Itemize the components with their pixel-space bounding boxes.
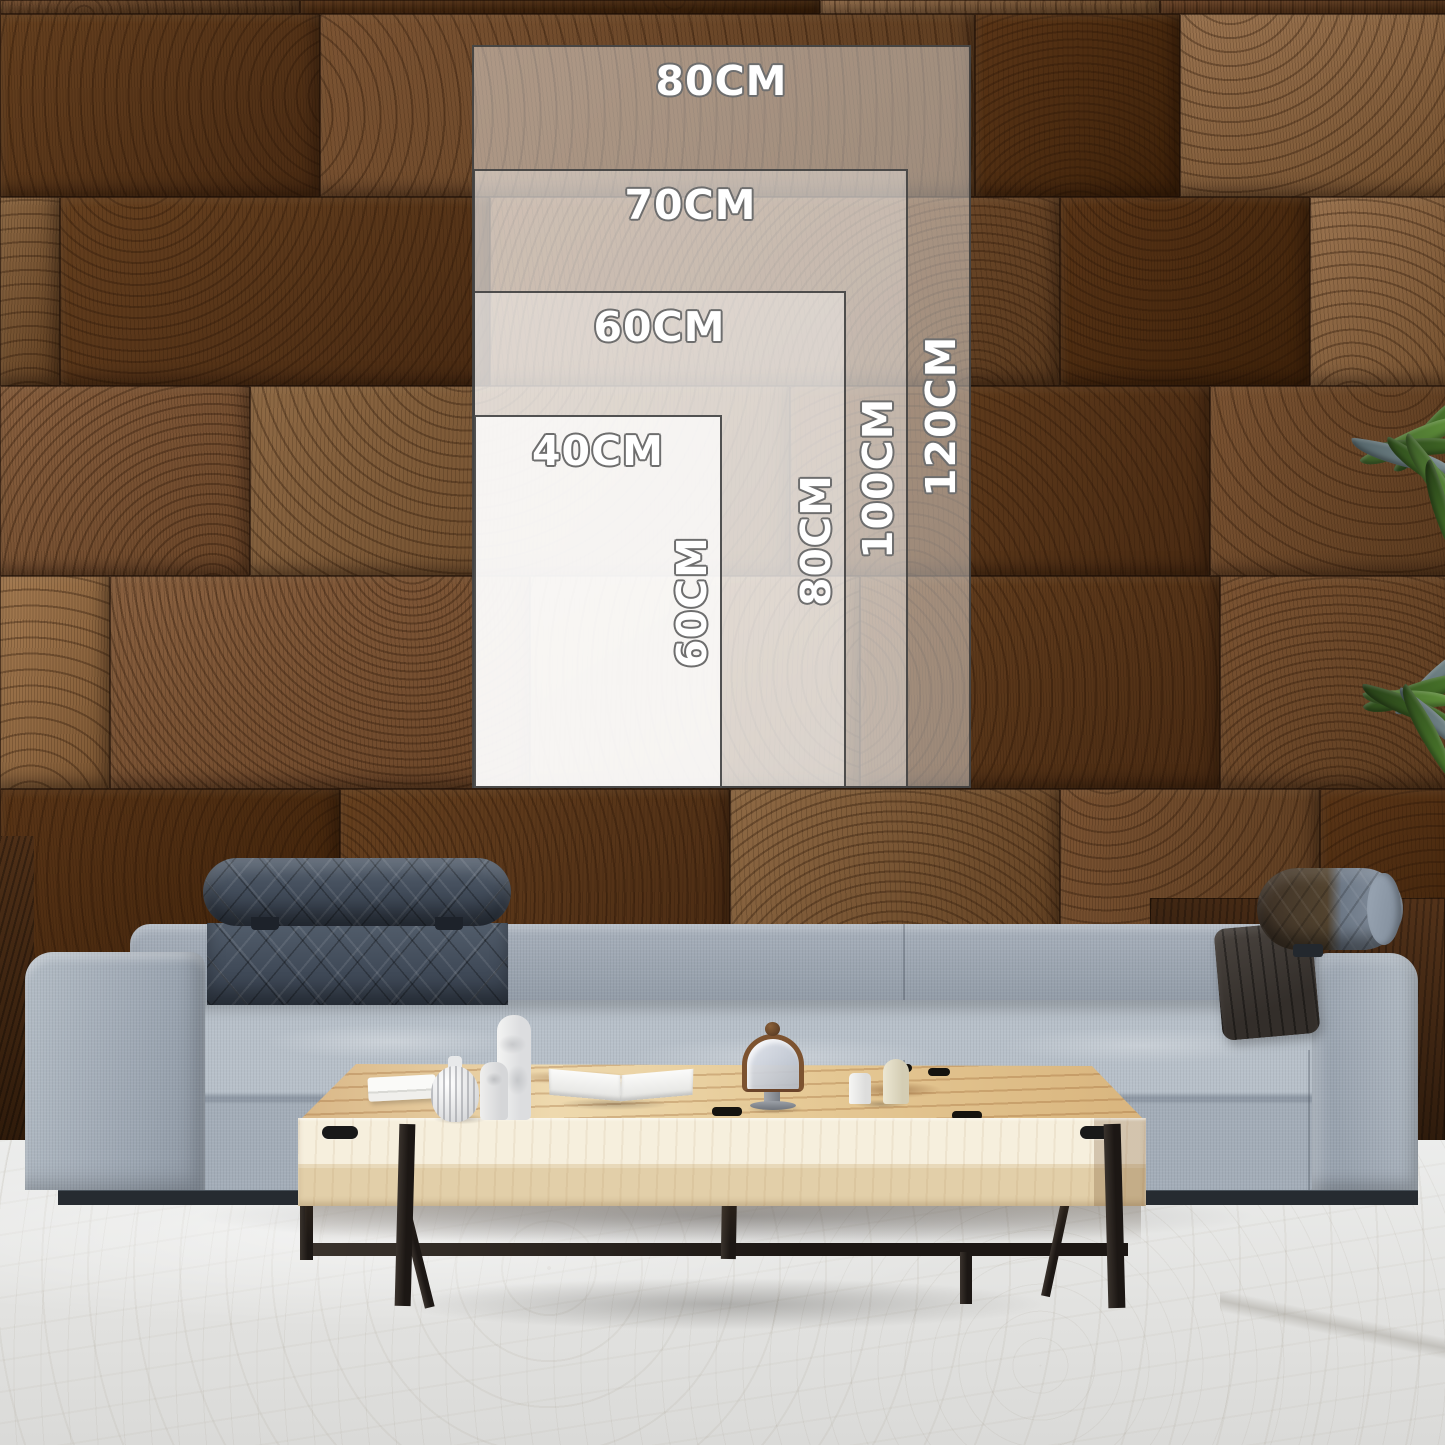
wall-block [1180, 14, 1445, 197]
wall-block [300, 0, 820, 14]
gourd-vase [431, 1066, 479, 1122]
sofa-arm-left [25, 952, 205, 1190]
cloche-base [750, 1101, 796, 1110]
size-width-label: 40CM [476, 427, 720, 475]
wall-row [0, 0, 1445, 14]
book-page-right [621, 1069, 694, 1101]
wall-block [110, 576, 530, 789]
wall-block [0, 14, 320, 197]
wall-block [0, 197, 60, 386]
headrest-clip [251, 917, 279, 930]
size-rect-40x60: 40CM 60CM [474, 415, 722, 788]
size-height-label: 120CM [917, 337, 965, 497]
size-height-label: 100CM [854, 399, 902, 559]
open-book [547, 1066, 697, 1106]
quilted-headrest-roll [203, 858, 511, 926]
wall-block [0, 576, 110, 789]
table-leg-foot-right [960, 1252, 972, 1304]
sofa-arm-right [1312, 953, 1418, 1190]
size-guide-scene: 80CM 120CM 70CM 100CM 60CM 80CM 40CM 60C… [0, 0, 1445, 1445]
wall-block [1160, 0, 1445, 14]
wall-block [1060, 197, 1310, 386]
cloche-knob [765, 1022, 780, 1036]
size-height-label: 60CM [668, 522, 716, 682]
book-page-left [549, 1069, 622, 1101]
white-books [367, 1074, 436, 1102]
roll-pillow-endcap [1367, 873, 1401, 945]
wall-block [820, 0, 1160, 14]
wall-block [0, 386, 250, 576]
size-height-label: 80CM [792, 460, 840, 620]
headrest-clip [435, 917, 463, 930]
table-leg-runner [304, 1243, 1128, 1256]
wall-block [975, 14, 1180, 197]
floor-vein [1220, 1280, 1445, 1370]
size-width-label: 80CM [474, 57, 969, 105]
wall-block [0, 0, 300, 14]
tall-candle [883, 1059, 909, 1104]
table-handle-left [322, 1126, 358, 1139]
leather-roll-pillow [1257, 868, 1403, 950]
tabletop-slot [928, 1068, 950, 1076]
size-width-label: 60CM [475, 303, 844, 351]
table-front-face [298, 1118, 1146, 1206]
wall-block [60, 197, 490, 386]
seat-seam [1308, 1050, 1310, 1190]
wall-block [1210, 386, 1445, 576]
wall-block [1220, 576, 1445, 789]
roll-pillow-bracket [1293, 944, 1323, 957]
quilted-headrest-panel [207, 923, 508, 1005]
table-underside-shadow [305, 1206, 1141, 1244]
size-width-label: 70CM [475, 181, 906, 229]
short-marble-vase [480, 1062, 508, 1120]
small-candle [849, 1073, 871, 1104]
wall-block [1310, 197, 1445, 386]
glass-cloche [742, 1034, 804, 1092]
